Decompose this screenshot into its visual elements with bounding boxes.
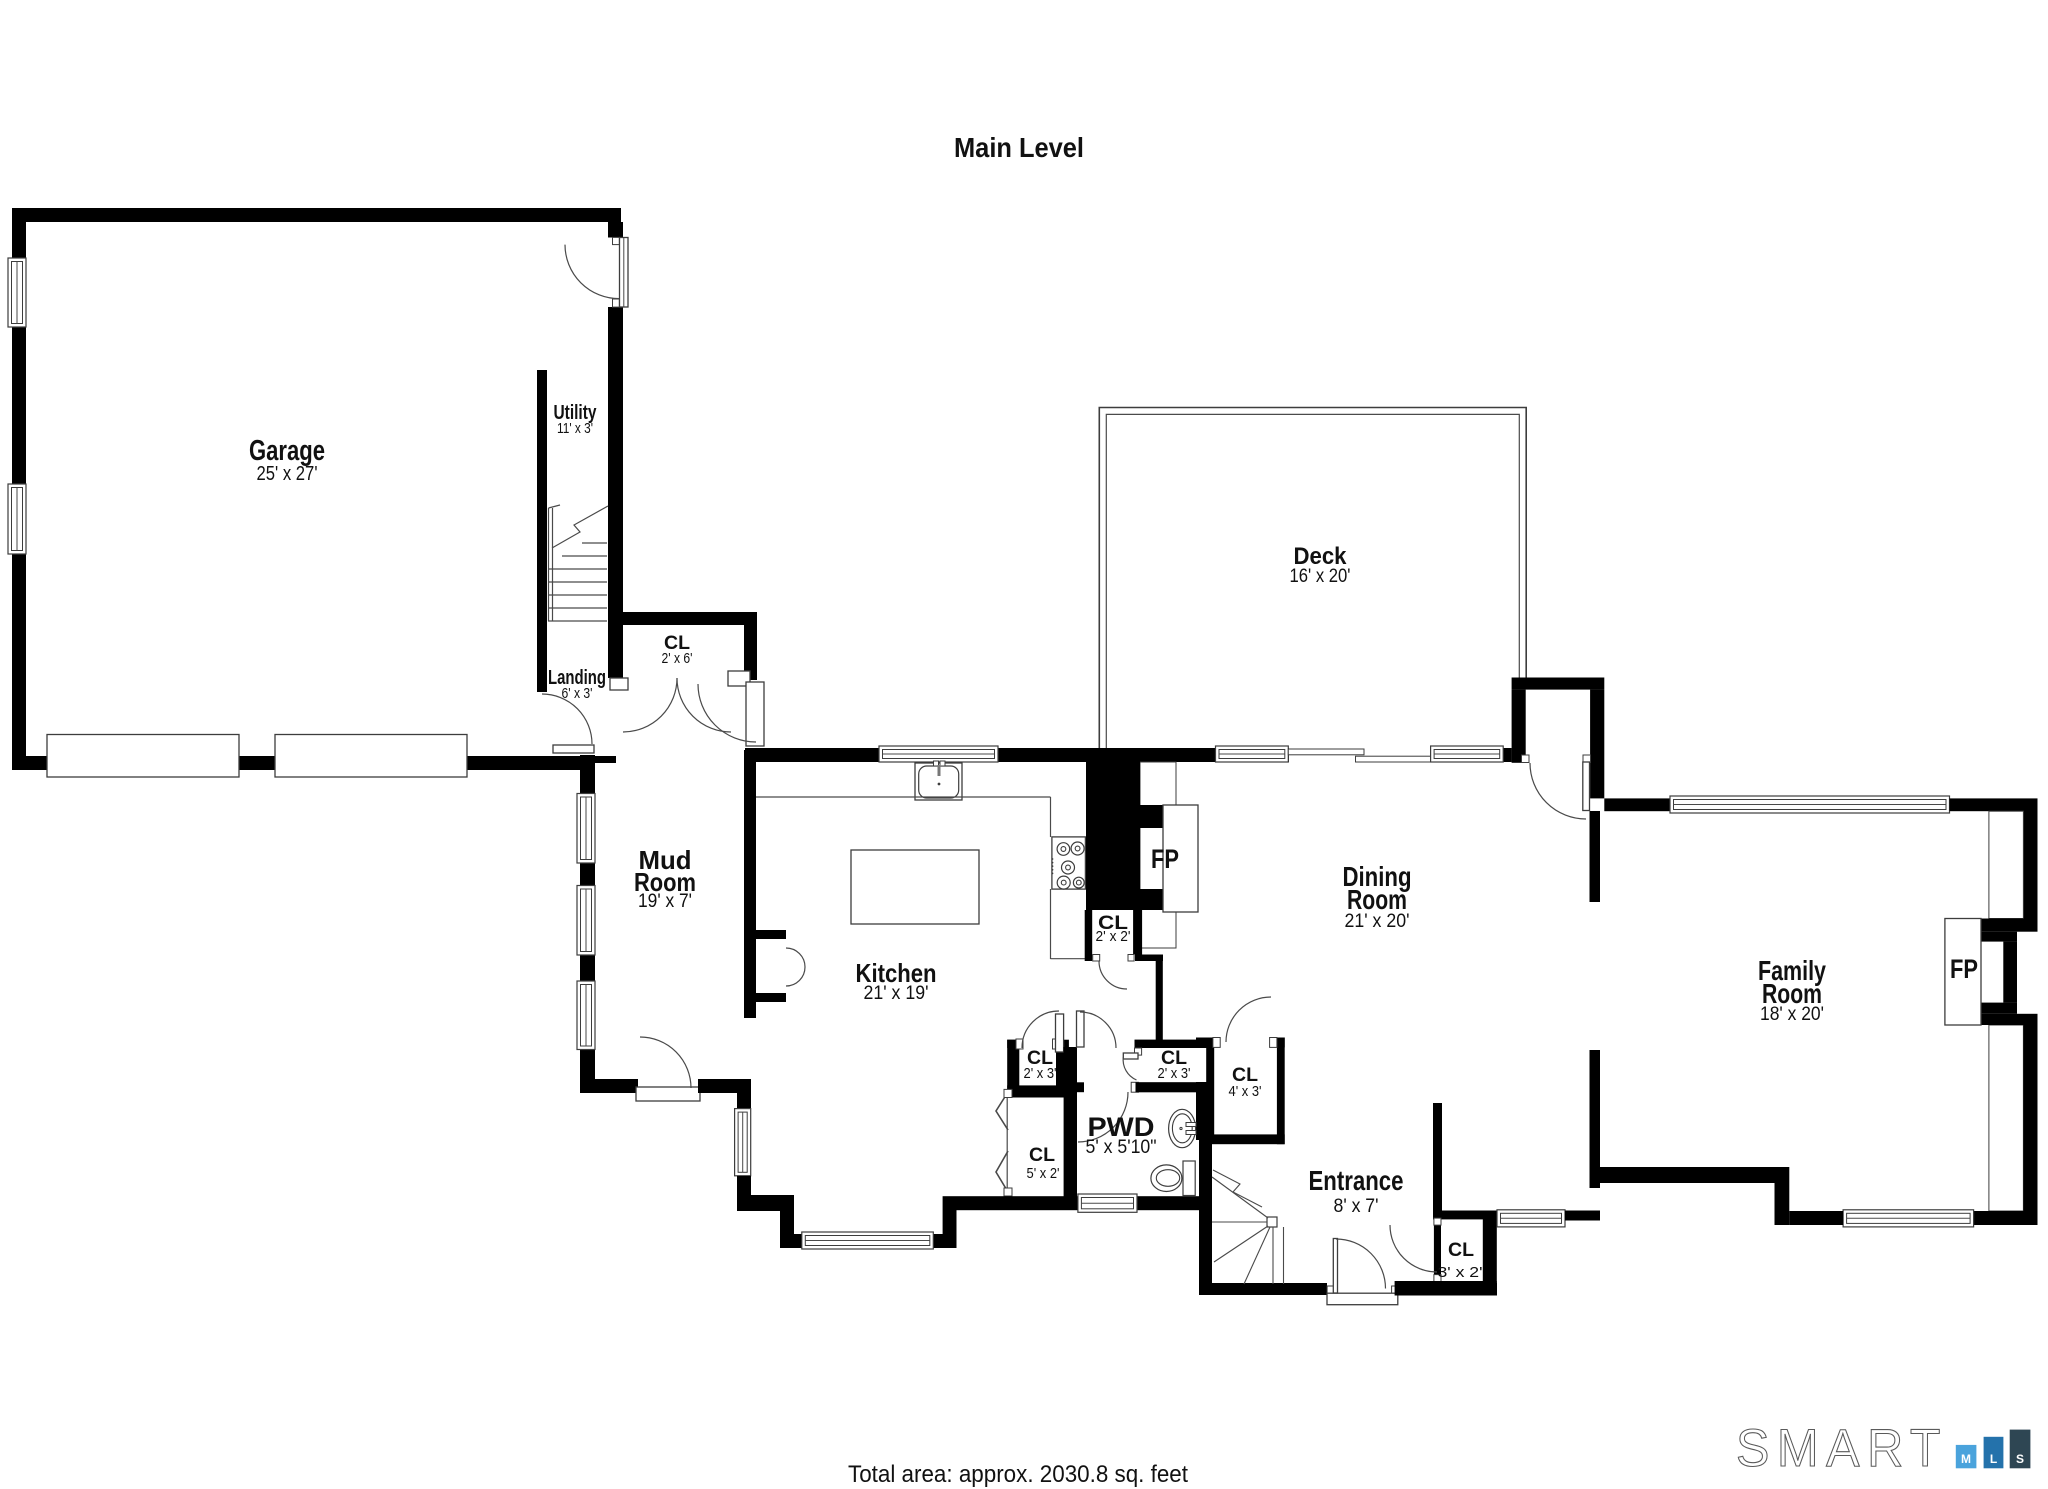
svg-text:L: L <box>1990 1452 1997 1466</box>
svg-text:Main Level: Main Level <box>954 132 1084 163</box>
svg-text:2' x 6': 2' x 6' <box>662 650 693 667</box>
svg-text:FP: FP <box>1950 954 1978 984</box>
svg-text:2' x 2': 2' x 2' <box>1096 929 1131 945</box>
svg-text:CL: CL <box>1029 1145 1055 1166</box>
svg-text:4' x 3': 4' x 3' <box>1229 1084 1262 1100</box>
svg-text:16' x 20': 16' x 20' <box>1290 566 1351 587</box>
svg-text:21' x 19': 21' x 19' <box>864 983 929 1004</box>
svg-text:Entrance: Entrance <box>1309 1165 1404 1196</box>
svg-text:25' x 27': 25' x 27' <box>257 463 318 485</box>
svg-text:5' x 5'10": 5' x 5'10" <box>1086 1137 1157 1158</box>
svg-text:S: S <box>2016 1452 2024 1466</box>
svg-text:3' x 2': 3' x 2' <box>1438 1265 1483 1281</box>
svg-text:11' x 3': 11' x 3' <box>557 420 593 437</box>
svg-text:Total area: approx. 2030.8 sq.: Total area: approx. 2030.8 sq. feet <box>848 1461 1188 1488</box>
svg-text:19' x 7': 19' x 7' <box>638 891 692 912</box>
svg-text:FP: FP <box>1151 844 1179 874</box>
svg-text:5' x 2': 5' x 2' <box>1027 1166 1060 1182</box>
svg-text:21' x 20': 21' x 20' <box>1345 911 1410 932</box>
svg-text:2' x 3': 2' x 3' <box>1024 1066 1057 1082</box>
svg-text:18' x 20': 18' x 20' <box>1760 1004 1824 1025</box>
svg-text:CL: CL <box>1448 1240 1474 1261</box>
svg-text:CL: CL <box>1232 1065 1258 1086</box>
svg-text:2' x 3': 2' x 3' <box>1158 1066 1191 1082</box>
svg-text:SMART: SMART <box>1736 1419 1948 1478</box>
svg-text:M: M <box>1961 1452 1971 1466</box>
svg-text:8' x 7': 8' x 7' <box>1334 1196 1379 1217</box>
